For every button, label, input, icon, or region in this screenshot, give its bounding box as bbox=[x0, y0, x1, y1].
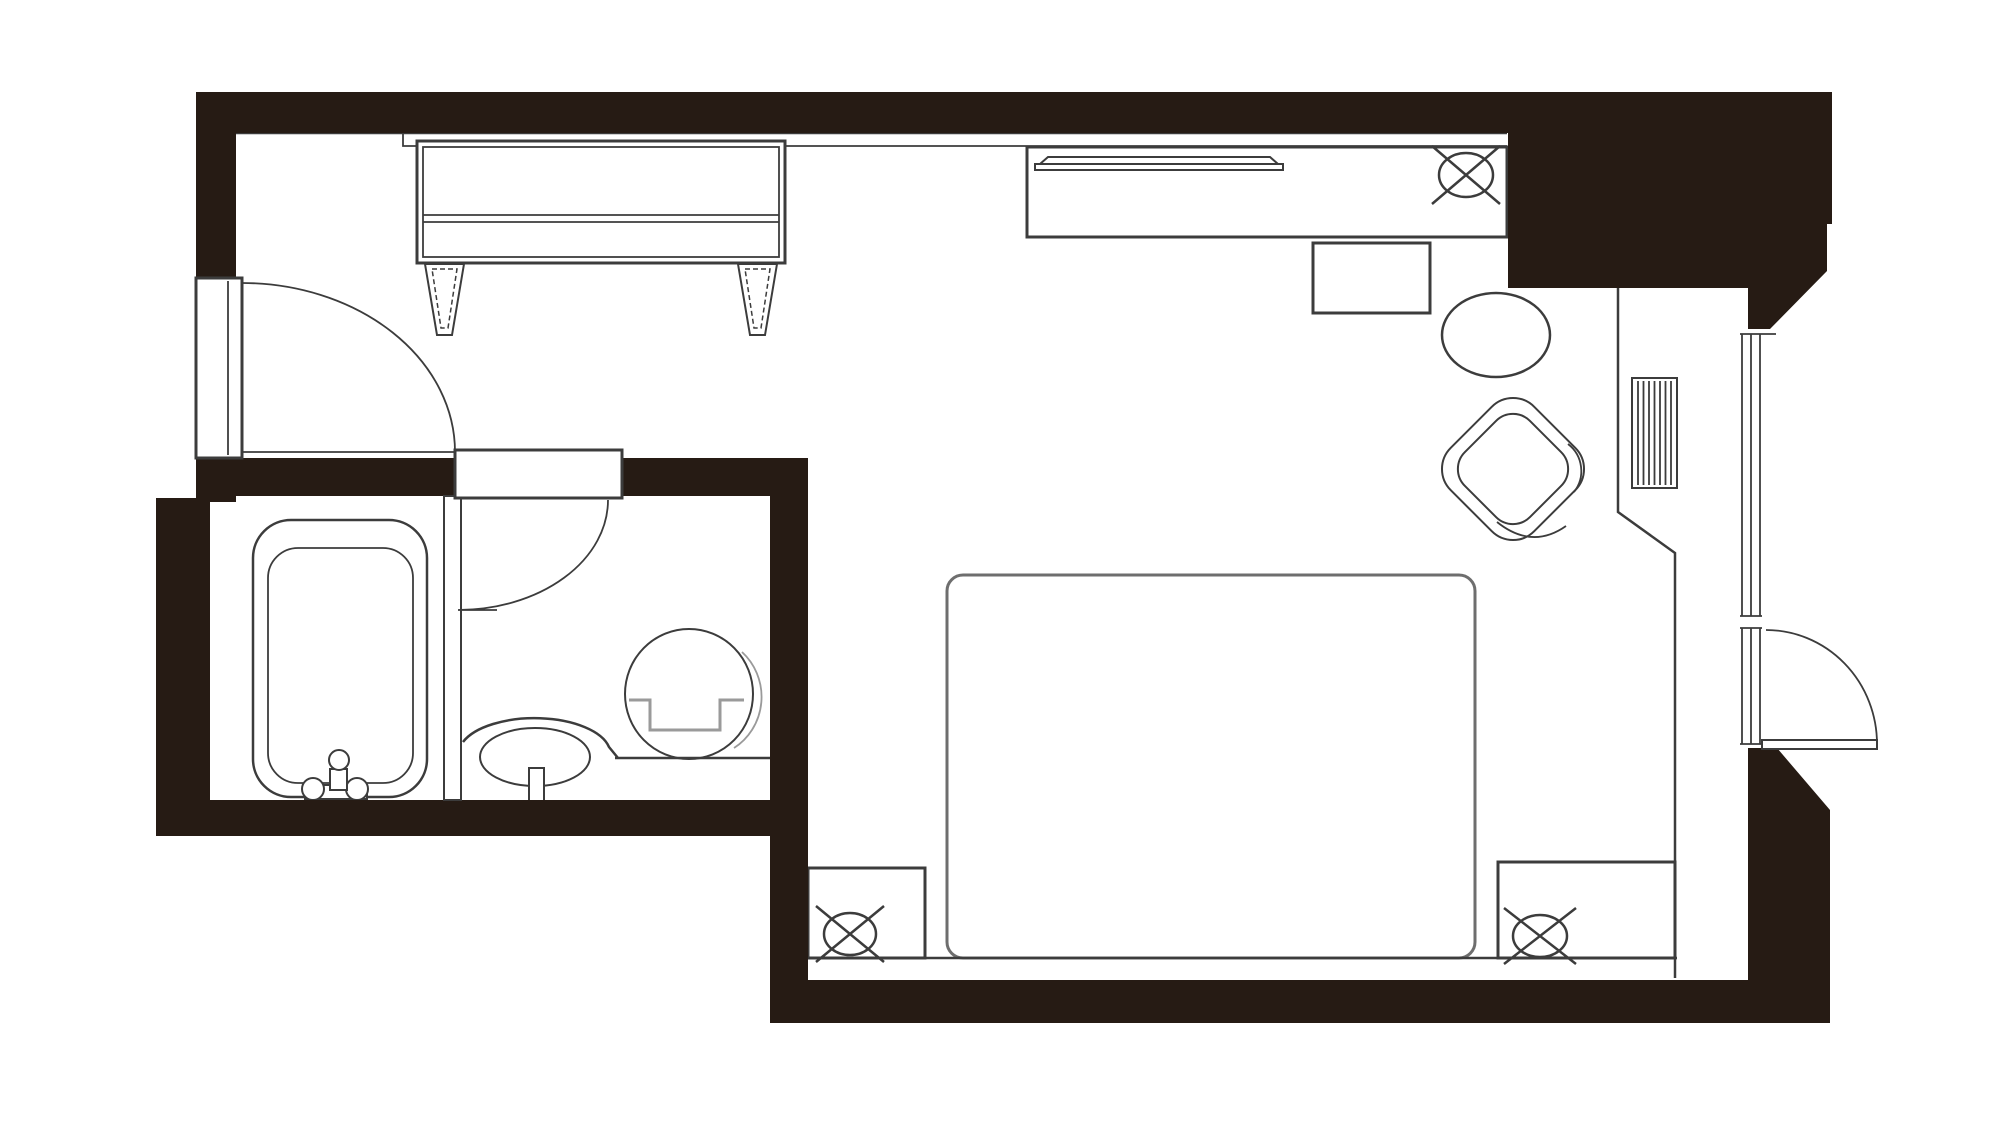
wall-top-right-block bbox=[1508, 92, 1832, 329]
vanity-sink bbox=[463, 718, 618, 802]
balcony-door-swing-arc bbox=[1766, 630, 1877, 744]
desk-tray bbox=[1040, 157, 1278, 164]
ac-unit-stripes bbox=[1638, 381, 1671, 485]
wall-left-lower bbox=[156, 498, 210, 836]
cabinet-leg-right bbox=[738, 264, 777, 335]
wall-left-upper bbox=[196, 92, 236, 278]
round-table bbox=[1442, 293, 1550, 377]
window-glass-lower bbox=[1742, 628, 1760, 744]
window-glass-upper bbox=[1742, 334, 1760, 616]
entrance-door-leaf bbox=[196, 278, 242, 458]
wall-bathroom-bottom bbox=[156, 800, 808, 836]
entrance-door-swing-arc bbox=[242, 283, 455, 452]
toilet-vanity-room bbox=[463, 629, 770, 802]
desk bbox=[1027, 146, 1507, 237]
faucet-knob bbox=[329, 750, 349, 770]
bathroom-door-leaf bbox=[455, 450, 622, 498]
toilet-bowl bbox=[625, 629, 753, 759]
wall-center-vertical bbox=[770, 458, 808, 1023]
balcony-door-leaf bbox=[1762, 740, 1877, 749]
toilet bbox=[625, 629, 762, 759]
ac-unit bbox=[1632, 378, 1677, 488]
window-sill-break bbox=[1740, 616, 1762, 628]
faucet-handle-right bbox=[346, 778, 368, 800]
wall-bottom-right-block bbox=[1748, 748, 1830, 1023]
floor-plan-canvas bbox=[0, 0, 2000, 1125]
armchair bbox=[1430, 386, 1597, 553]
bathroom-door-swing-arc bbox=[458, 500, 608, 610]
luggage-stool bbox=[1313, 243, 1430, 313]
balcony-door bbox=[1762, 630, 1877, 749]
bathtub-room bbox=[253, 520, 427, 800]
armchair-cushion bbox=[1448, 404, 1578, 534]
faucet-handle-left bbox=[302, 778, 324, 800]
sink-faucet bbox=[529, 768, 544, 802]
cabinet-body bbox=[417, 141, 785, 263]
bathroom-partition bbox=[444, 496, 461, 800]
entrance-door bbox=[196, 278, 455, 458]
floor-plan-page bbox=[0, 0, 2000, 1125]
tv-cabinet bbox=[417, 141, 785, 335]
nightstand-right bbox=[1498, 862, 1675, 958]
bed-zone bbox=[808, 575, 1677, 964]
bed bbox=[947, 575, 1475, 958]
wall-bottom bbox=[770, 980, 1830, 1023]
cabinet-leg-left bbox=[425, 264, 464, 335]
wall-top bbox=[196, 92, 1508, 133]
window bbox=[1740, 334, 1776, 744]
bathroom-door bbox=[455, 450, 622, 610]
faucet-stem bbox=[330, 769, 347, 790]
wall-bathroom-top-left bbox=[196, 458, 455, 496]
desk-tray-base bbox=[1035, 164, 1283, 170]
